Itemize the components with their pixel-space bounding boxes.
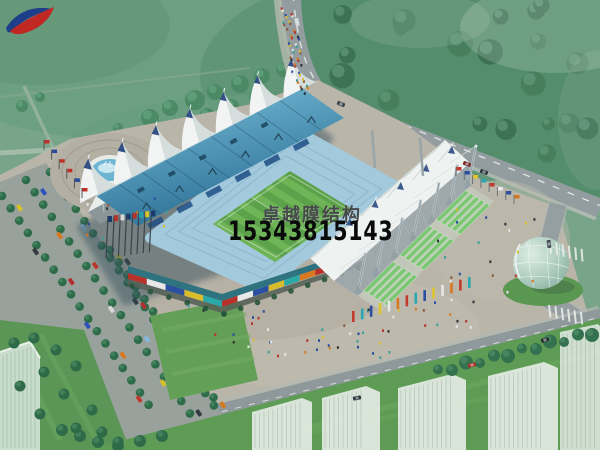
watermark-phone-number: 15343815143: [228, 216, 393, 247]
stadium-aerial-rendering: 卓越膜结构 15343815143: [0, 0, 600, 450]
swoosh-bird-logo-icon: [0, 0, 58, 40]
corner-building: [0, 342, 40, 450]
